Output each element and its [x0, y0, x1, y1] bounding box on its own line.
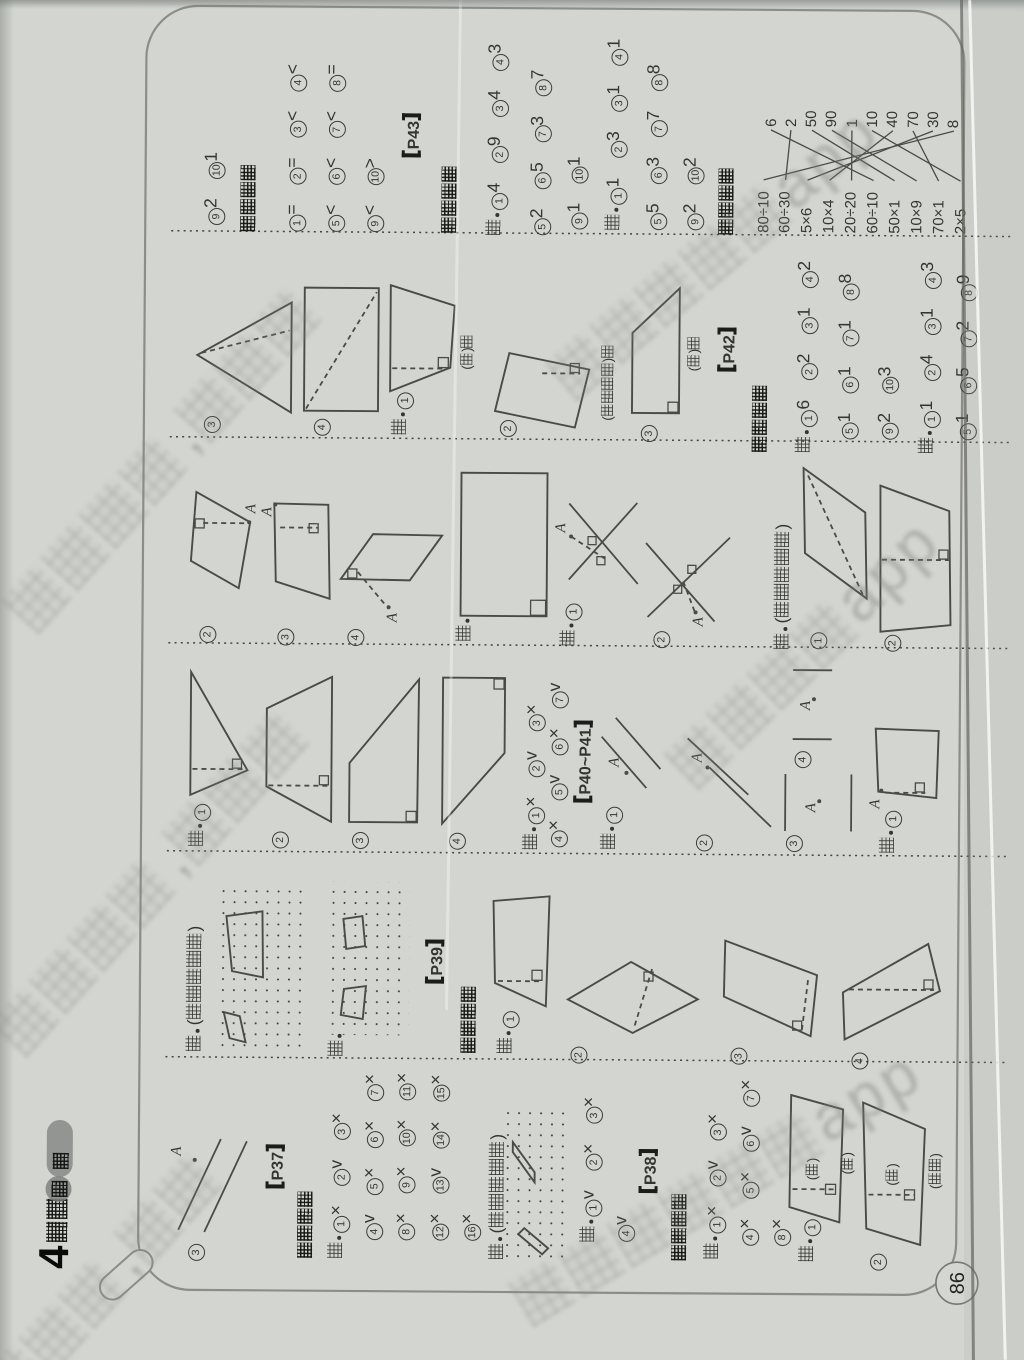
svg-text:A: A: [803, 802, 819, 813]
svg-text:A: A: [243, 503, 259, 514]
svg-text:A: A: [169, 1146, 185, 1157]
svg-text:A: A: [384, 612, 400, 623]
svg-text:A: A: [606, 757, 622, 768]
svg-text:A: A: [553, 522, 569, 533]
svg-text:A: A: [690, 752, 706, 763]
svg-text:A: A: [867, 799, 883, 810]
svg-text:A: A: [798, 700, 814, 711]
svg-text:A: A: [690, 616, 706, 627]
svg-text:A: A: [259, 506, 275, 517]
